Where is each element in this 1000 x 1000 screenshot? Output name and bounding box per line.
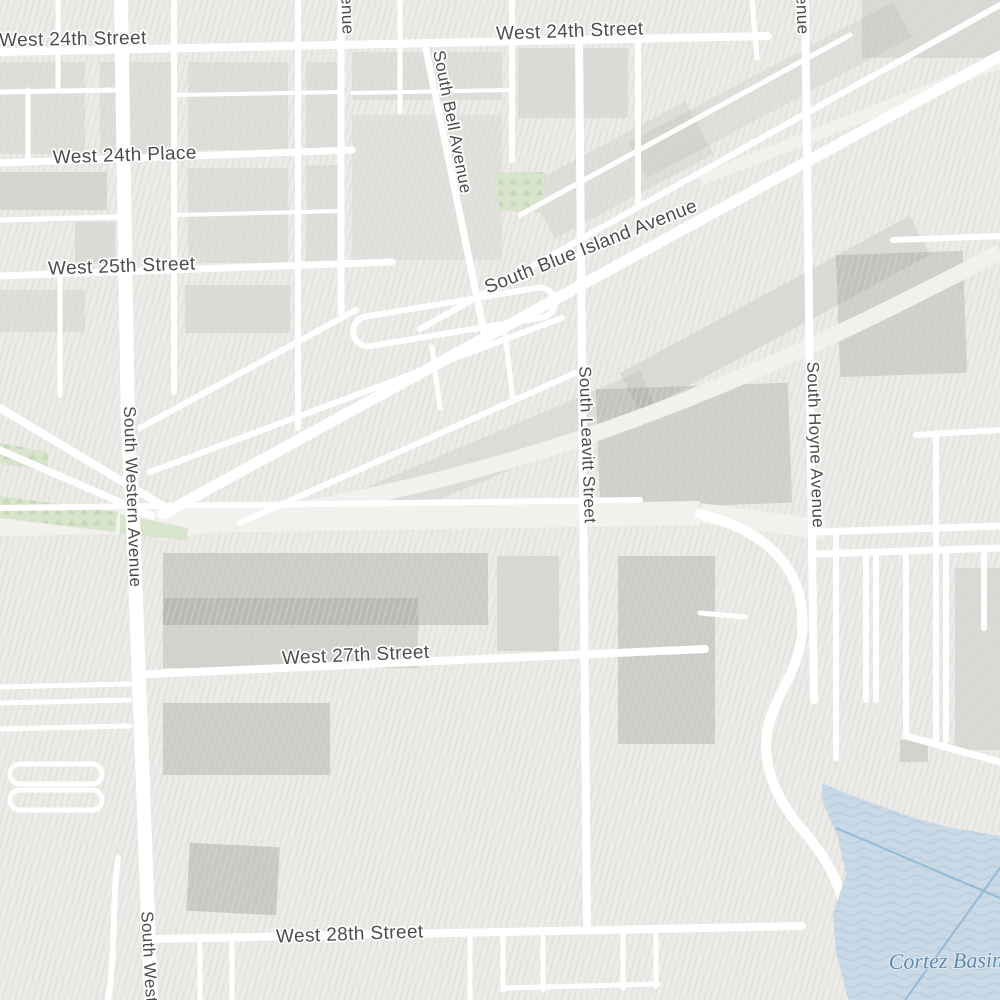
road-segment	[0, 217, 118, 220]
road-segment	[0, 726, 130, 729]
road-segment	[0, 90, 118, 92]
water-label: Cortez Basin	[889, 947, 1000, 974]
street-label: enue	[792, 0, 812, 35]
road-segment	[0, 700, 130, 703]
road-segment	[0, 684, 130, 687]
street-label: enue	[337, 0, 357, 35]
map-canvas[interactable]: West 24th StreetWest 24th StreetWest 24t…	[0, 0, 1000, 1000]
road-segment	[893, 236, 1000, 240]
street-label: West 24th Street	[0, 28, 147, 52]
